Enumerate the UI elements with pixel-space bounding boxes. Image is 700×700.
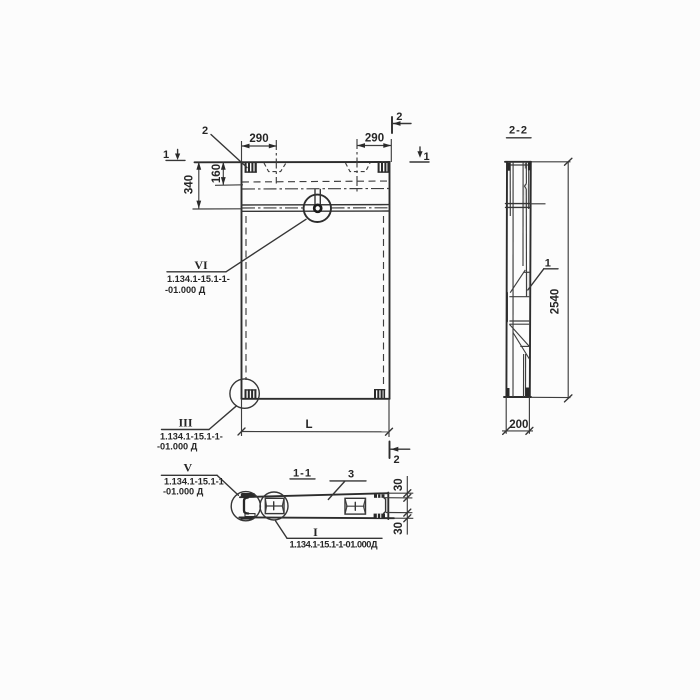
- svg-text:160: 160: [211, 164, 223, 183]
- svg-text:340: 340: [184, 175, 196, 194]
- svg-text:1.134.1-15.1-1: 1.134.1-15.1-1: [164, 477, 224, 487]
- svg-text:-01.000 Д: -01.000 Д: [163, 487, 204, 497]
- svg-text:200: 200: [509, 419, 528, 431]
- svg-text:V: V: [183, 461, 192, 475]
- svg-text:1-1: 1-1: [293, 468, 312, 480]
- svg-text:2: 2: [396, 111, 402, 123]
- svg-text:1.134.1-15.1-1-: 1.134.1-15.1-1-: [160, 432, 223, 442]
- svg-text:1.134.1-15.1-1-01.000Д: 1.134.1-15.1-1-01.000Д: [290, 540, 378, 550]
- svg-text:1: 1: [163, 149, 169, 161]
- svg-text:3: 3: [348, 469, 354, 481]
- svg-text:1: 1: [545, 258, 551, 270]
- svg-text:VI: VI: [194, 258, 208, 272]
- svg-text:2540: 2540: [550, 289, 562, 315]
- svg-text:290: 290: [249, 133, 268, 145]
- svg-text:30: 30: [393, 522, 405, 535]
- svg-text:1.134.1-15.1-1-: 1.134.1-15.1-1-: [167, 274, 230, 284]
- svg-text:1: 1: [423, 151, 429, 163]
- svg-text:III: III: [178, 416, 192, 430]
- svg-text:L: L: [305, 419, 312, 431]
- svg-text:I: I: [313, 525, 318, 539]
- svg-text:-01.000 Д: -01.000 Д: [157, 442, 198, 452]
- svg-text:2-2: 2-2: [509, 125, 528, 137]
- svg-text:30: 30: [393, 478, 405, 491]
- svg-text:2: 2: [393, 454, 399, 466]
- svg-text:2: 2: [202, 125, 208, 137]
- svg-text:290: 290: [365, 133, 384, 145]
- svg-text:-01.000 Д: -01.000 Д: [165, 285, 206, 295]
